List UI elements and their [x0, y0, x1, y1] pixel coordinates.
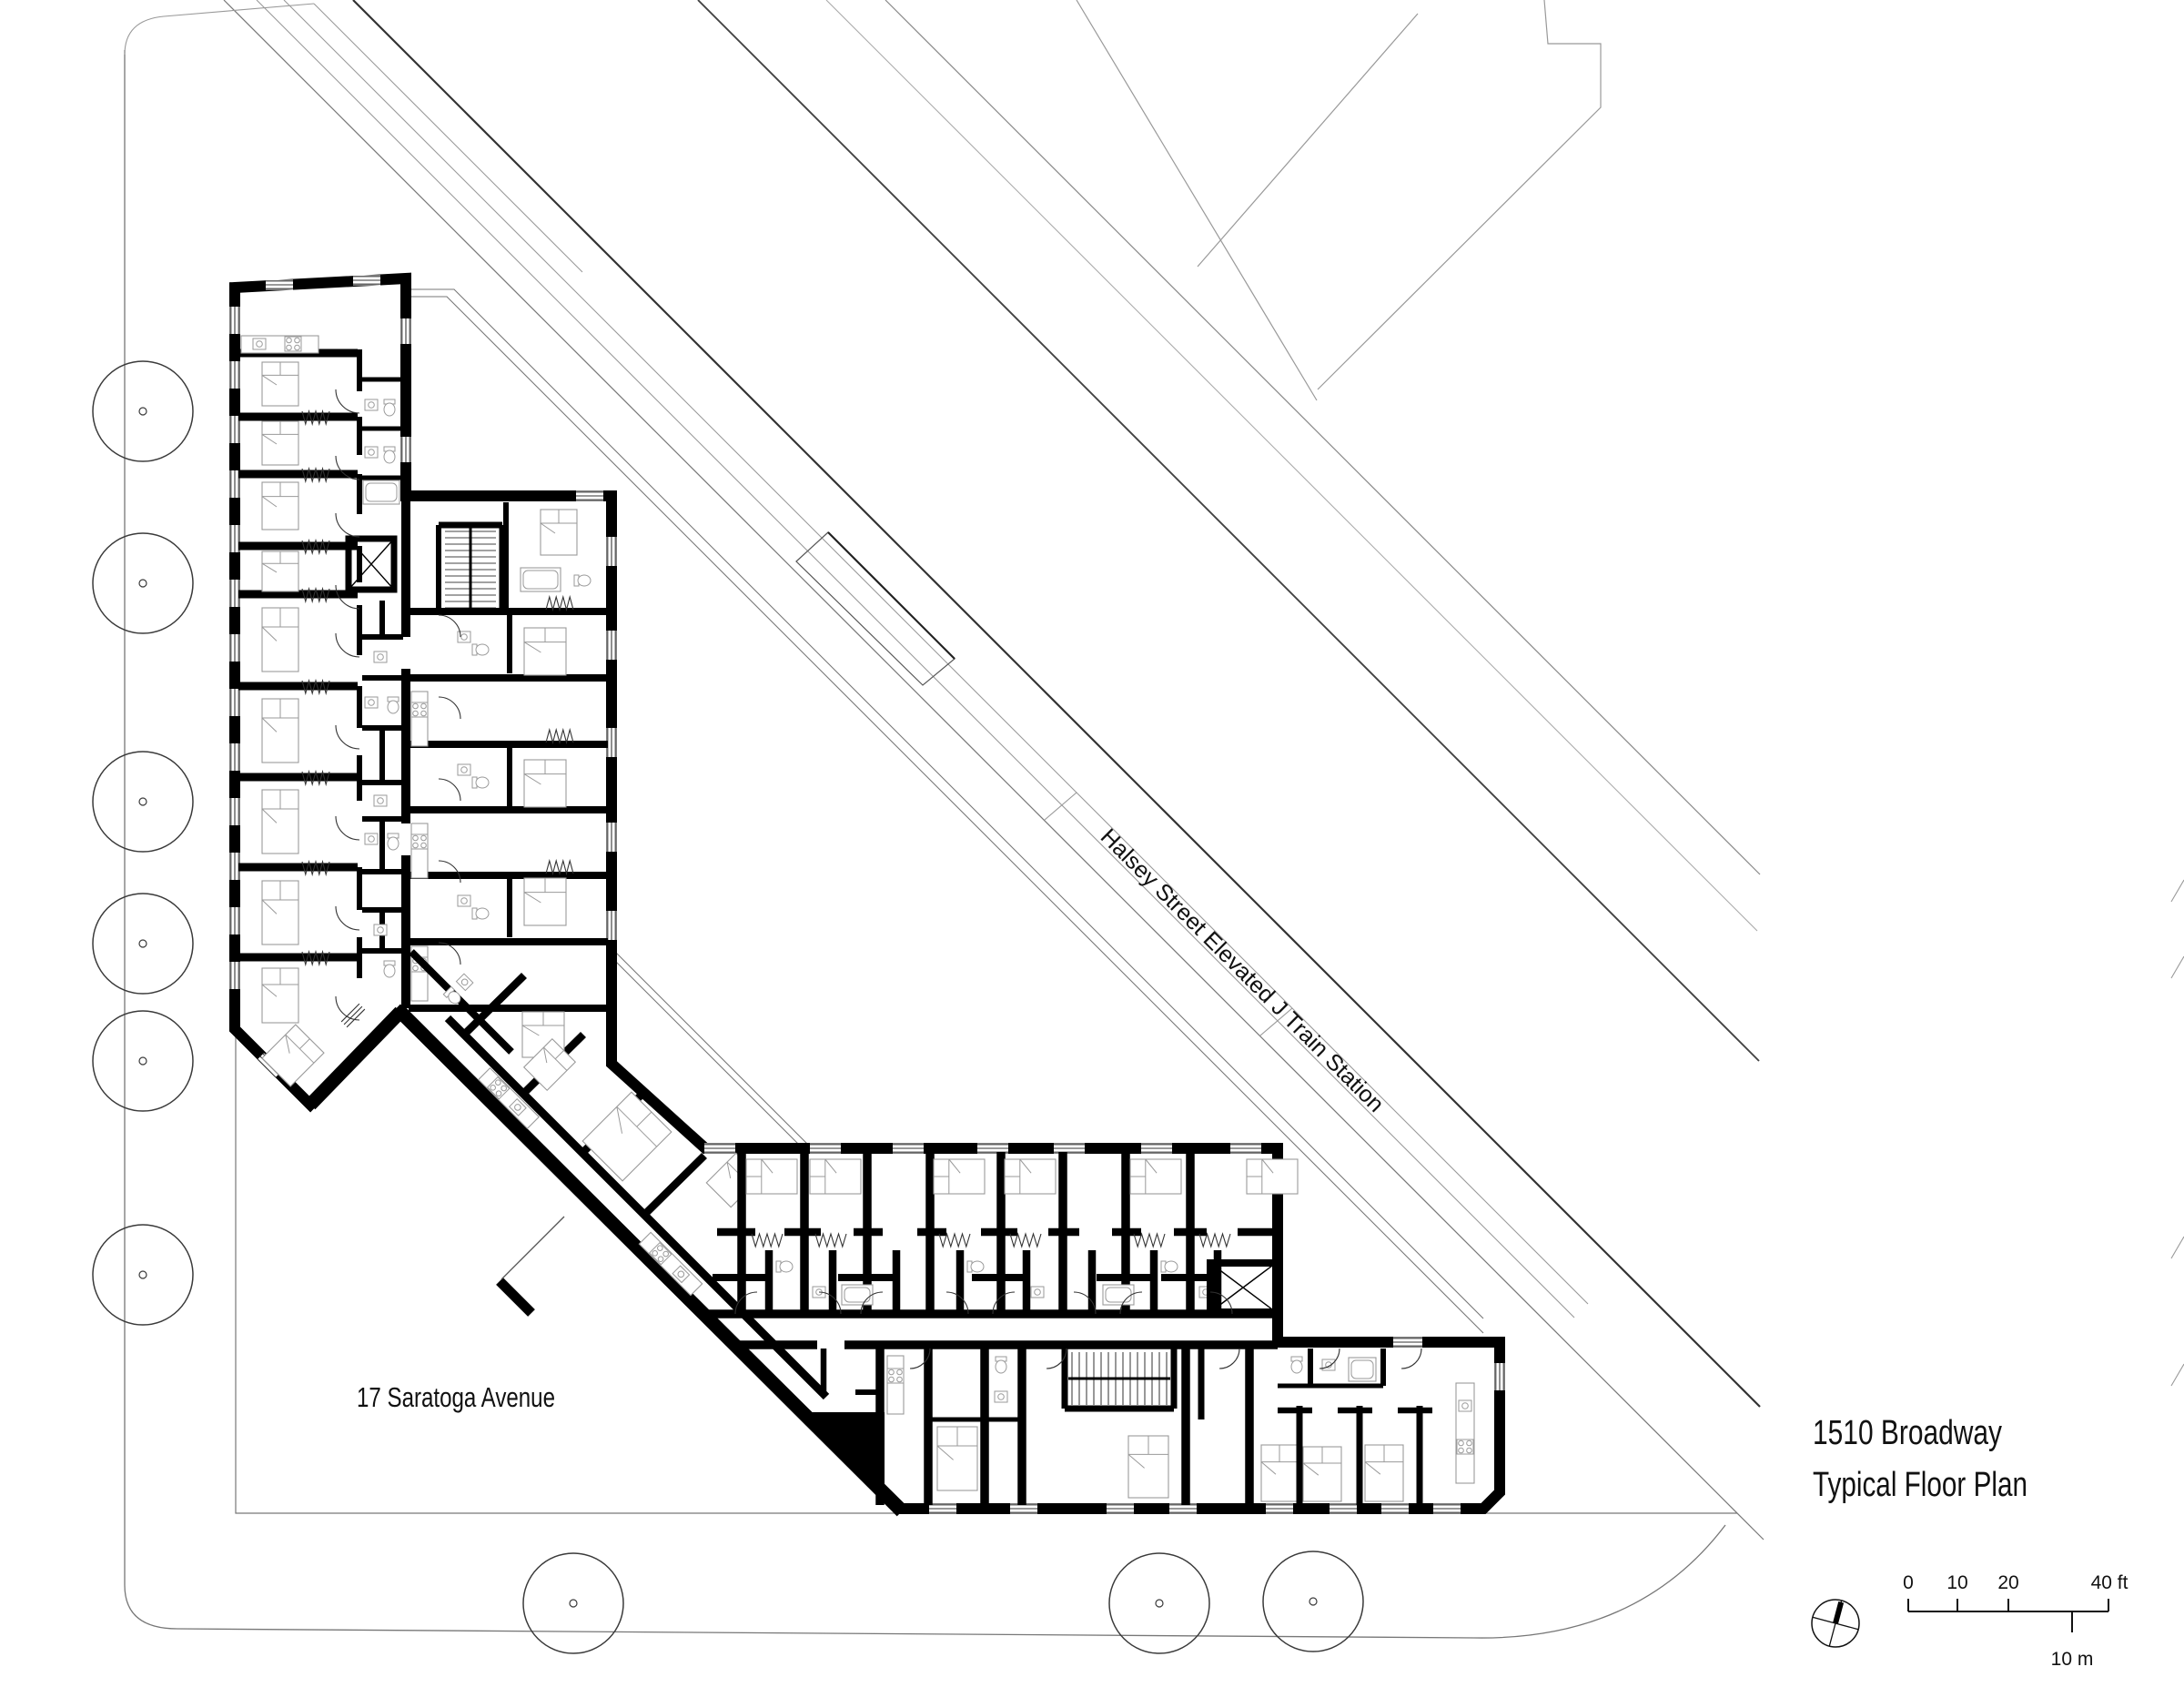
svg-text:10 m: 10 m — [2051, 1649, 2094, 1670]
svg-text:Typical Floor Plan: Typical Floor Plan — [1813, 1466, 2027, 1504]
svg-text:20: 20 — [1997, 1572, 2018, 1593]
svg-text:17 Saratoga Avenue: 17 Saratoga Avenue — [357, 1381, 555, 1413]
svg-text:40 ft: 40 ft — [2091, 1572, 2128, 1593]
svg-text:10: 10 — [1946, 1572, 1967, 1593]
svg-text:1510 Broadway: 1510 Broadway — [1813, 1414, 2002, 1452]
svg-text:0: 0 — [1903, 1572, 1914, 1593]
